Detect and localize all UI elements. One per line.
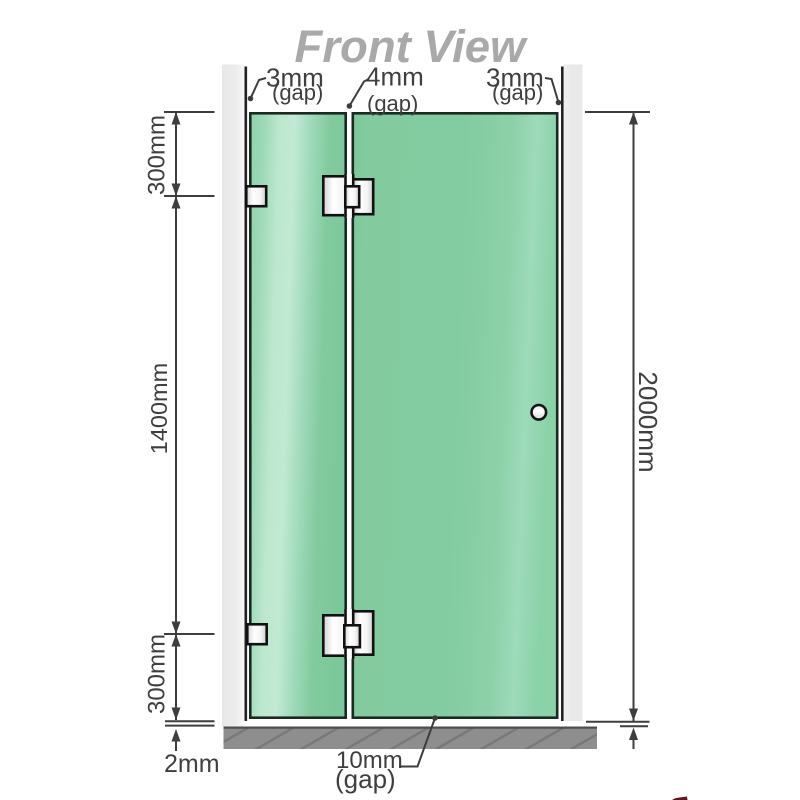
svg-text:300mm: 300mm	[143, 634, 170, 714]
svg-text:(gap): (gap)	[272, 80, 323, 105]
svg-text:(gap): (gap)	[367, 91, 418, 116]
svg-text:300mm: 300mm	[143, 115, 170, 195]
svg-text:1400mm: 1400mm	[146, 363, 172, 454]
svg-text:4mm: 4mm	[366, 62, 424, 92]
svg-text:2mm: 2mm	[164, 750, 220, 778]
svg-text:(gap): (gap)	[492, 80, 543, 105]
svg-text:2000mm: 2000mm	[633, 371, 663, 472]
svg-text:(gap): (gap)	[335, 764, 396, 794]
